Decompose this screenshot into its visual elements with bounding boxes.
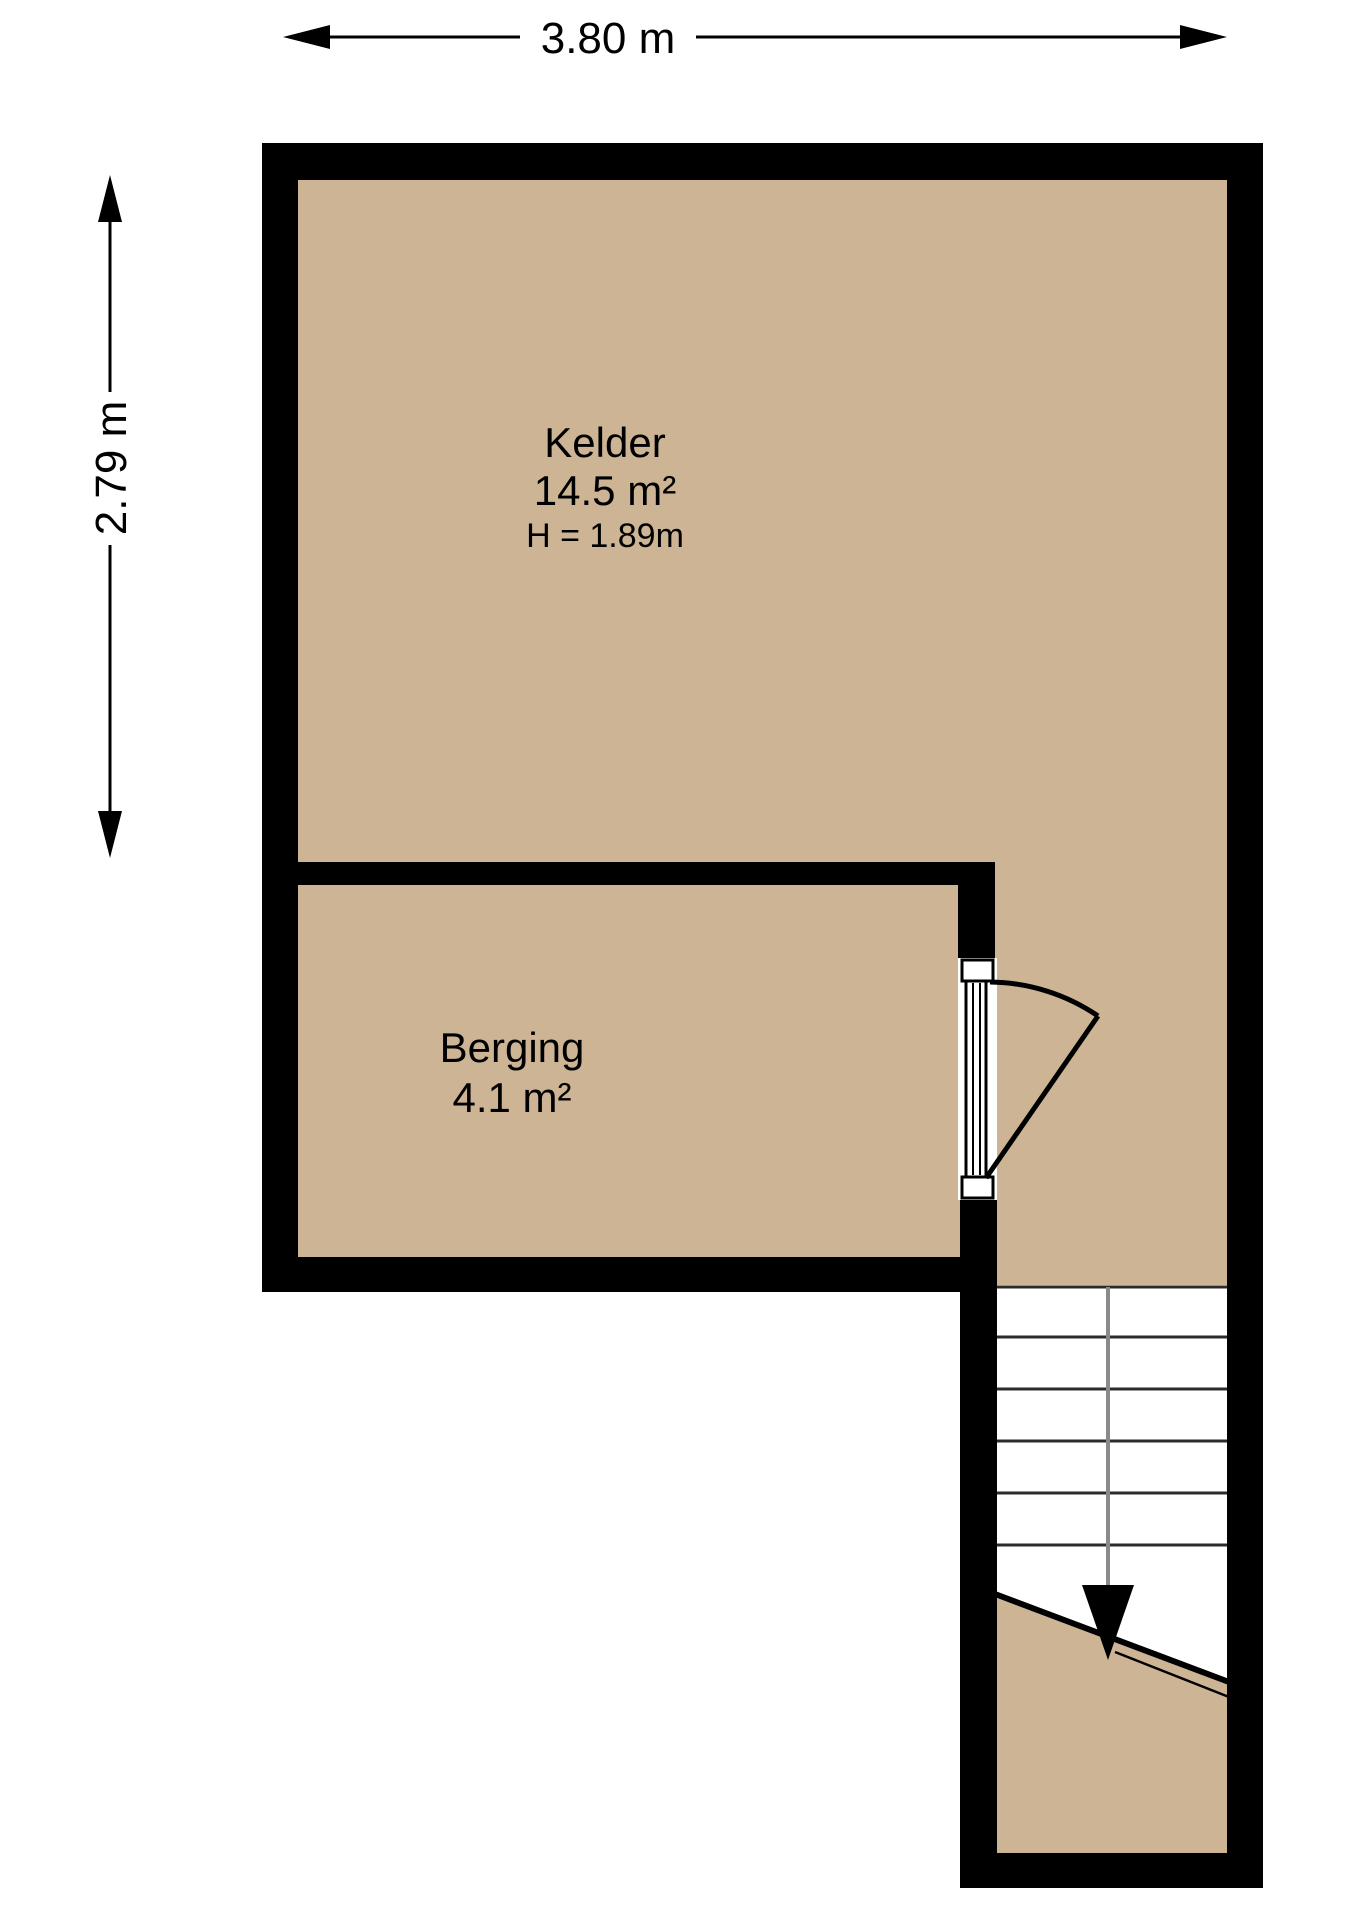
berging-name-label: Berging: [440, 1024, 585, 1071]
wall-stair-shaft-left: [960, 1200, 997, 1888]
arrow-up-icon: [98, 175, 122, 222]
berging-room-floor: [298, 885, 960, 1257]
width-dimension-label: 3.80 m: [541, 14, 676, 63]
wall-bottom: [960, 1853, 1263, 1888]
wall-berging-bottom: [262, 1257, 995, 1292]
kelder-corridor-floor: [995, 862, 1227, 1287]
floorplan-page: 3.80 m 2.79 m Kelder 14.5 m² H = 1.89m B…: [0, 0, 1358, 1920]
width-dimension: 3.80 m: [283, 14, 1227, 63]
arrow-right-icon: [1180, 25, 1227, 49]
door-jamb-bottom: [962, 1177, 993, 1198]
height-dimension: 2.79 m: [87, 175, 136, 858]
kelder-area-label: 14.5 m²: [534, 467, 676, 514]
kelder-name-label: Kelder: [544, 419, 665, 466]
kelder-room-floor: [298, 180, 1227, 862]
wall-top: [262, 143, 1263, 180]
wall-left: [262, 143, 298, 1292]
arrow-left-icon: [283, 25, 330, 49]
wall-right: [1227, 143, 1263, 1888]
floorplan-svg: 3.80 m 2.79 m Kelder 14.5 m² H = 1.89m B…: [0, 0, 1358, 1920]
door-jamb-top: [962, 960, 993, 981]
wall-door-post-top: [958, 862, 995, 958]
arrow-down-icon: [98, 811, 122, 858]
height-dimension-label: 2.79 m: [87, 401, 136, 536]
kelder-ceiling-height-label: H = 1.89m: [526, 517, 684, 555]
berging-area-label: 4.1 m²: [452, 1074, 571, 1121]
door-panel: [966, 981, 986, 1177]
wall-kelder-berging-divider: [298, 862, 958, 885]
